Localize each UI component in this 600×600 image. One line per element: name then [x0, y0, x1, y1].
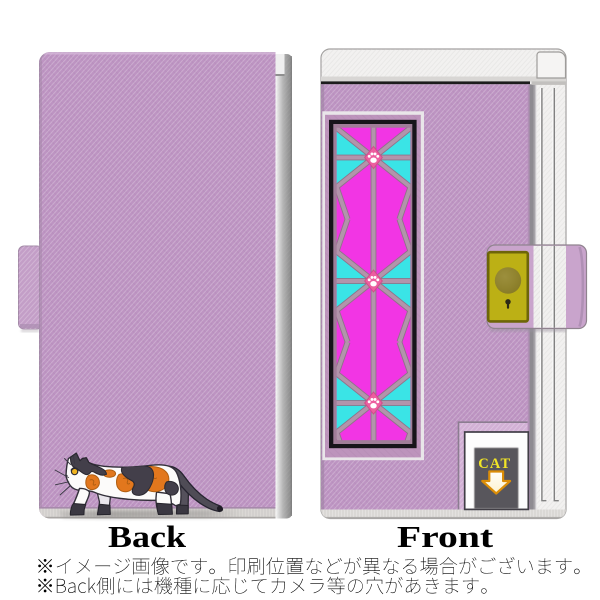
svg-text:CAT: CAT — [478, 456, 511, 472]
